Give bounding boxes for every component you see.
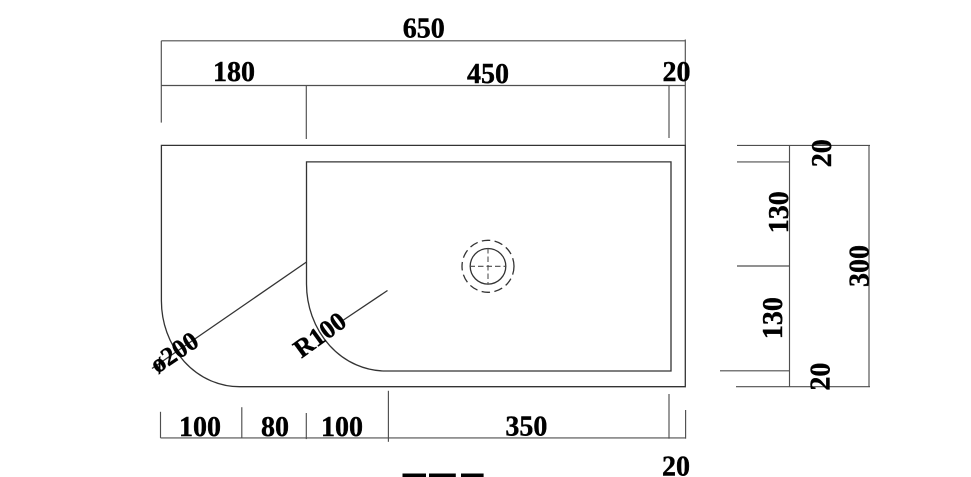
svg-text:130: 130 [758, 297, 789, 339]
svg-text:350: 350 [505, 411, 547, 442]
svg-text:130: 130 [764, 191, 795, 233]
svg-text:20: 20 [807, 139, 838, 167]
svg-text:100: 100 [179, 412, 221, 443]
svg-text:20: 20 [662, 451, 690, 477]
svg-text:80: 80 [261, 412, 289, 443]
svg-text:180: 180 [213, 57, 255, 88]
svg-text:20: 20 [663, 57, 691, 88]
svg-text:100: 100 [321, 412, 363, 443]
svg-text:300: 300 [844, 245, 875, 287]
svg-text:650: 650 [403, 13, 445, 44]
svg-text:20: 20 [806, 363, 837, 391]
svg-text:450: 450 [467, 59, 509, 90]
